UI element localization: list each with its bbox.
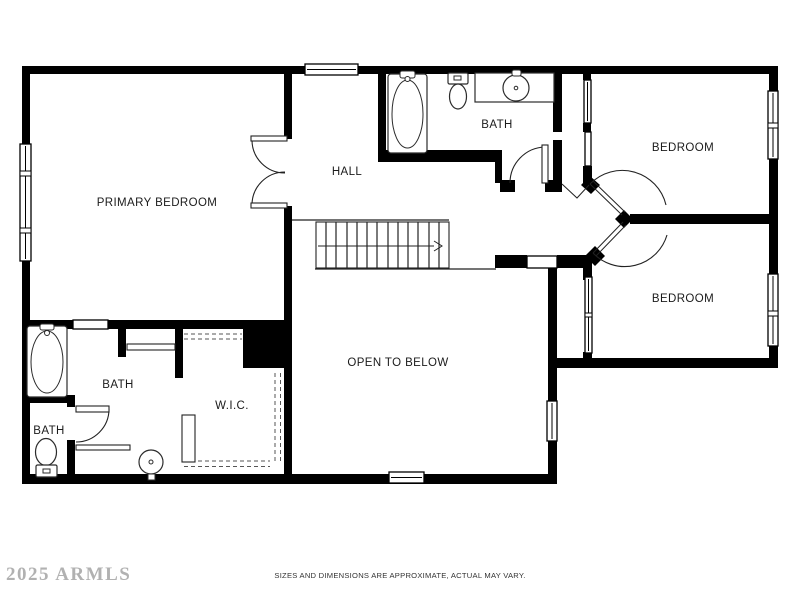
closet-door-bedroom-br xyxy=(585,277,592,353)
window-open-below-bottom xyxy=(389,472,424,483)
room-label-bath-small: BATH xyxy=(33,425,64,437)
room-label-primary-bedroom: PRIMARY BEDROOM xyxy=(97,197,218,209)
opening-primary-bath xyxy=(73,320,108,329)
toilet-upper xyxy=(448,73,468,109)
vanity-sink-upper xyxy=(475,70,554,102)
room-labels: PRIMARY BEDROOM HALL BATH BEDROOM BEDROO… xyxy=(33,119,714,437)
room-label-bath-primary: BATH xyxy=(102,379,133,391)
bathtub-primary xyxy=(27,324,67,397)
armls-watermark: 2025 ARMLS xyxy=(6,564,131,585)
bath-counter xyxy=(76,344,175,450)
room-label-wic: W.I.C. xyxy=(215,400,249,412)
window-bedroom-tr-right xyxy=(768,91,778,159)
window-primary-left xyxy=(20,144,31,261)
floor-plan-svg: PRIMARY BEDROOM HALL BATH BEDROOM BEDROO… xyxy=(0,0,800,599)
disclaimer-text: SIZES AND DIMENSIONS ARE APPROXIMATE, AC… xyxy=(274,571,525,580)
staircase xyxy=(292,220,496,269)
wic-shelf xyxy=(182,415,195,462)
doors xyxy=(76,136,667,442)
opening-bedroom-tr-left xyxy=(585,132,591,166)
window-hall-top xyxy=(305,64,358,75)
angled-wall-corner xyxy=(615,210,633,228)
toilet-small-bath xyxy=(36,439,58,478)
room-label-bedroom-br: BEDROOM xyxy=(652,293,714,305)
room-label-hall: HALL xyxy=(332,166,363,178)
door-upper-bath xyxy=(510,145,548,183)
window-open-below-right xyxy=(547,401,557,441)
opening-hall-rail xyxy=(527,256,557,268)
room-label-open-to-below: OPEN TO BELOW xyxy=(347,357,448,369)
closet-door-bedroom-tr xyxy=(584,80,591,123)
bathtub-upper xyxy=(388,71,427,153)
room-label-bath-upper: BATH xyxy=(481,119,512,131)
window-bedroom-br-right xyxy=(768,274,778,346)
door-bedroom-br xyxy=(593,222,667,267)
french-doors-primary-bedroom xyxy=(251,136,287,208)
room-label-bedroom-tr: BEDROOM xyxy=(652,142,714,154)
floor-plan-page: PRIMARY BEDROOM HALL BATH BEDROOM BEDROO… xyxy=(0,0,800,599)
door-primary-bath xyxy=(76,406,109,442)
door-bedroom-tr xyxy=(590,170,666,215)
